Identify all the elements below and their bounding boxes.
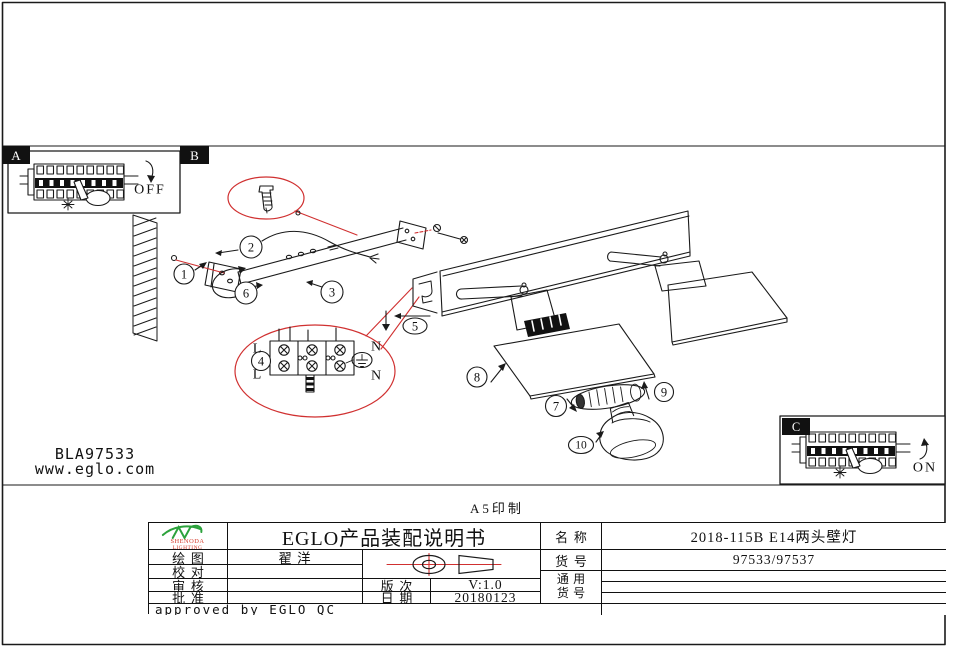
field-name-label: 名称 (541, 523, 602, 550)
panel-label-c-text: C (792, 420, 800, 434)
lamp-back-plate (413, 211, 690, 316)
step-2: 2 (248, 241, 254, 255)
field-common-label: 通用 货号 (541, 571, 602, 604)
common-label-line2: 货号 (553, 587, 590, 601)
field-date-value: 20180123 (431, 592, 541, 604)
ground-symbol-icon (352, 353, 372, 368)
left-lamp-arm (456, 283, 570, 337)
field-item-label: 货号 (541, 550, 602, 571)
projection-symbol (363, 550, 541, 579)
wall-anchor-callout (228, 177, 304, 219)
field-check-label: 校对 (149, 565, 228, 579)
panel-label-a-text: A (11, 148, 21, 163)
titleblock-title: EGLO产品装配说明书 (228, 523, 541, 550)
terminal-l-top: L (253, 342, 262, 357)
wall-anchor-icon (259, 186, 273, 213)
wall-hatch (134, 218, 156, 335)
field-name-value: 2018-115B E14两头壁灯 (602, 523, 946, 550)
screw-icon (438, 233, 468, 244)
step-10: 10 (575, 440, 587, 452)
logo-text-2: LIGHTING (173, 544, 203, 549)
terminal-l-bottom: L (253, 368, 262, 383)
logo-swoosh-icon (163, 525, 202, 537)
field-check-value (228, 565, 363, 579)
step-4: 4 (258, 355, 265, 369)
field-approve-value (228, 592, 363, 604)
common-value-row (602, 593, 946, 604)
field-approve-label: 批准 (149, 592, 228, 604)
print-note: A5印制 (420, 498, 574, 517)
on-label: ON (913, 461, 937, 476)
field-version-label: 版次 (363, 579, 431, 592)
field-date-label: 日期 (363, 592, 431, 604)
wall-section (133, 215, 157, 341)
power-cable (262, 231, 379, 263)
right-lamp-shade (668, 272, 787, 345)
field-version-value: V:1.0 (431, 579, 541, 592)
shade-holder (655, 261, 706, 291)
step-8: 8 (474, 371, 480, 385)
website-url: www.eglo.com (24, 460, 166, 478)
step-1: 1 (181, 268, 187, 282)
approved-note: approved by EGLO QC (149, 604, 602, 615)
field-item-value: 97533/97537 (602, 550, 946, 571)
step-7: 7 (553, 400, 559, 414)
step-9: 9 (661, 386, 667, 400)
instruction-sheet: A B C OFF ON 1 2 3 4 5 6 7 8 9 10 L L N … (0, 0, 960, 647)
wall-bracket (205, 262, 241, 292)
panel-label-b-text: B (190, 148, 199, 163)
terminal-n-top: N (371, 340, 381, 355)
off-label: OFF (134, 183, 166, 198)
common-value-row (602, 582, 946, 593)
field-audit-value (228, 579, 363, 592)
step-6: 6 (243, 287, 249, 301)
right-lamp-arm (608, 252, 706, 291)
terminal-block (270, 327, 354, 392)
step-3: 3 (329, 286, 335, 300)
common-value-row (602, 571, 946, 582)
title-block: SHENODA LIGHTING EGLO产品装配说明书 绘图 翟 洋 校对 审… (148, 522, 945, 614)
step-5: 5 (412, 320, 418, 334)
approved-note-blank (602, 604, 946, 615)
company-logo: SHENODA LIGHTING (149, 523, 228, 550)
terminal-n-bottom: N (371, 369, 381, 384)
field-draw-label: 绘图 (149, 550, 228, 565)
keyhole-slot (413, 272, 437, 313)
light-bulb-icon (600, 402, 664, 461)
field-audit-label: 审核 (149, 579, 228, 592)
common-label-line1: 通用 (553, 573, 590, 587)
field-draw-value: 翟 洋 (228, 550, 363, 565)
bar-end-plate (397, 221, 426, 249)
lamp-socket (570, 380, 647, 413)
